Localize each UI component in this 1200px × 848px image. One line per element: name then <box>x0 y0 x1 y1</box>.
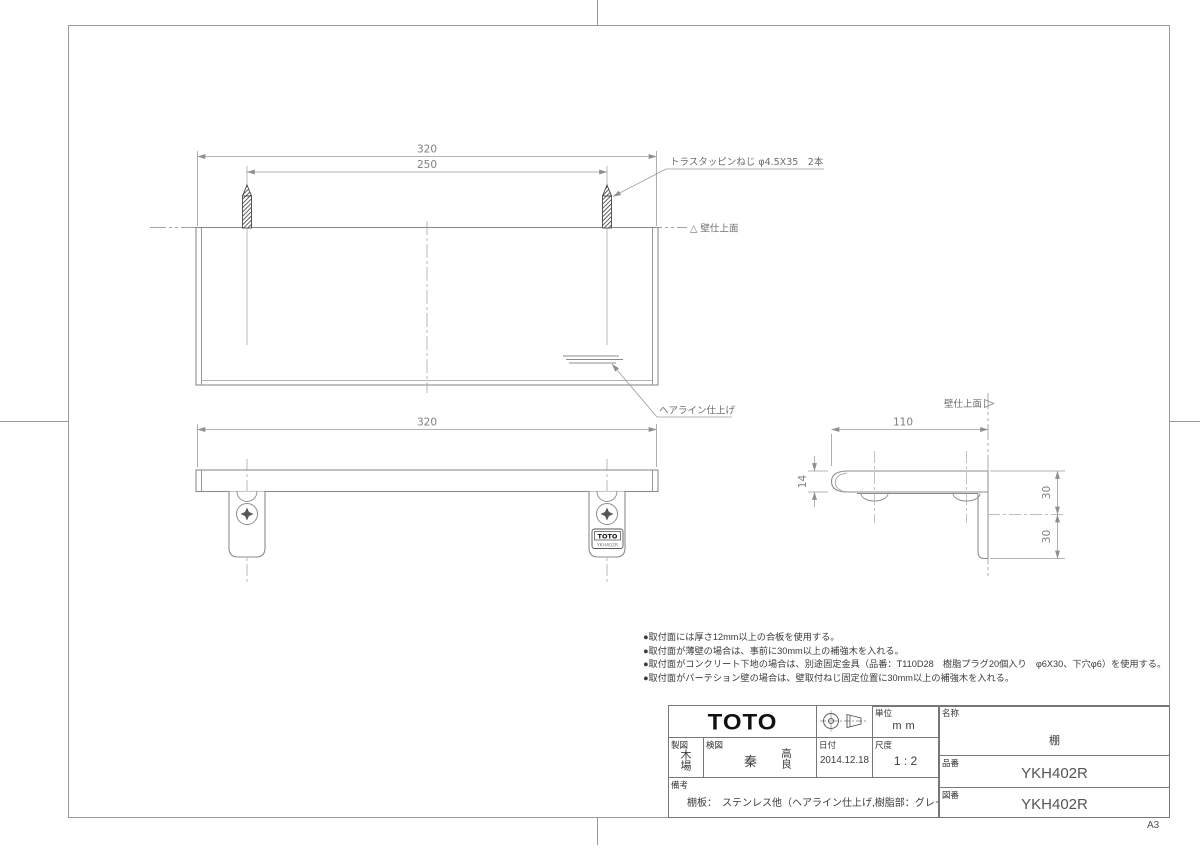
title-block: TOTO 単位 mm 製図 木場 検図 秦 高良 <box>668 705 1170 818</box>
dimension-lower-30: 30 <box>990 515 1065 559</box>
remarks-label: 備考 <box>671 779 688 791</box>
note-line: ●取付面がパーテション壁の場合は、壁取付ねじ固定位置に30mm以上の補強木を入れ… <box>643 672 1168 686</box>
unit-cell: 単位 mm <box>873 706 939 738</box>
screw-icon <box>603 166 612 345</box>
svg-text:トラスタッピンねじ φ4.5X35 2本: トラスタッピンねじ φ4.5X35 2本 <box>670 156 824 168</box>
checker-cell: 検図 秦 高良 <box>704 738 817 778</box>
drafter-cell: 製図 木場 <box>669 738 704 778</box>
shelf-plate-front <box>196 470 658 492</box>
note-line: ●取付面が薄壁の場合は、事前に30mm以上の補強木を入れる。 <box>643 645 1168 659</box>
scale-label: 尺度 <box>875 739 892 751</box>
part-number-value: YKH402R <box>940 765 1169 782</box>
drawing-number-cell: 図番 YKH402R <box>939 788 1169 817</box>
dimension-upper-30: 30 <box>988 471 1066 515</box>
shelf-plate-profile <box>832 471 989 492</box>
svg-text:14: 14 <box>797 475 809 489</box>
svg-text:320: 320 <box>417 417 437 429</box>
checker-label: 検図 <box>706 739 723 751</box>
top-view: 320 250 トラスタッピンねじ φ4.5X35 2本 △ 壁仕上面 <box>150 144 824 418</box>
date-cell: 日付 2014.12.18 <box>817 738 873 778</box>
svg-text:30: 30 <box>1041 486 1053 499</box>
svg-text:110: 110 <box>893 417 913 429</box>
third-angle-projection-icon <box>817 706 871 736</box>
installation-notes: ●取付面には厚さ12mm以上の合板を使用する。 ●取付面が薄壁の場合は、事前に3… <box>643 631 1168 689</box>
dimension-thickness: 14 <box>797 456 828 507</box>
date-label: 日付 <box>819 739 836 751</box>
name-label: 名称 <box>942 707 959 719</box>
hairline-finish-annotation: ヘアライン仕上げ <box>563 356 736 417</box>
name-cell: 名称 棚 <box>939 706 1169 756</box>
dimension-depth: 110 <box>832 417 989 467</box>
note-line: ●取付面には厚さ12mm以上の合板を使用する。 <box>643 631 1168 645</box>
screw-annotation: トラスタッピンねじ φ4.5X35 2本 <box>613 156 824 197</box>
part-number-cell: 品番 YKH402R <box>939 756 1169 788</box>
unit-value: mm <box>873 720 938 732</box>
tag-brand: TOTO <box>598 533 618 541</box>
date-value: 2014.12.18 <box>817 755 872 766</box>
bracket-left <box>229 459 265 584</box>
svg-text:250: 250 <box>417 159 437 171</box>
remarks-cell: 備考 棚板： ステンレス他（ヘアライン仕上げ,樹脂部：グレー） <box>669 778 939 817</box>
svg-text:30: 30 <box>1041 530 1053 543</box>
brand-logo-cell: TOTO <box>669 706 817 738</box>
dimension-front-width: 320 <box>198 417 657 468</box>
projection-symbol-cell <box>817 706 873 738</box>
drawing-sheet: 320 250 トラスタッピンねじ φ4.5X35 2本 △ 壁仕上面 <box>0 0 1200 848</box>
wall-finish-label-side: 壁仕上面 <box>944 398 994 410</box>
front-view: 320 <box>196 417 658 585</box>
dimension-screw-pitch: 250 <box>247 159 607 172</box>
svg-text:320: 320 <box>417 144 437 156</box>
bracket-right: TOTO YKH402R <box>589 459 625 584</box>
drafter-name: 木場 <box>679 749 691 771</box>
dimension-top-width: 320 <box>198 144 657 227</box>
product-tag: TOTO YKH402R <box>592 529 623 549</box>
remarks-value: 棚板： ステンレス他（ヘアライン仕上げ,樹脂部：グレー） <box>687 794 939 809</box>
checker-stamp: 秦 <box>744 751 757 770</box>
scale-value: 1 : 2 <box>873 754 938 768</box>
checker-stamp: 高良 <box>780 748 791 769</box>
side-view: 壁仕上面 110 <box>797 393 1066 577</box>
tag-model: YKH402R <box>596 543 619 549</box>
toto-logo: TOTO <box>669 710 816 736</box>
svg-text:△ 壁仕上面: △ 壁仕上面 <box>690 223 738 235</box>
bracket-profile <box>857 451 988 559</box>
svg-text:ヘアライン仕上げ: ヘアライン仕上げ <box>659 405 736 417</box>
drawing-number-value: YKH402R <box>940 796 1169 813</box>
svg-text:壁仕上面: 壁仕上面 <box>944 398 982 410</box>
wall-finish-label-top: △ 壁仕上面 <box>687 221 759 235</box>
wall-triangle-icon <box>985 400 994 408</box>
unit-label: 単位 <box>875 707 892 719</box>
screw-icon <box>243 166 252 345</box>
name-value: 棚 <box>940 732 1169 748</box>
note-line: ●取付面がコンクリート下地の場合は、別途固定金具（品番：T110D28 樹脂プラ… <box>643 658 1168 672</box>
paper-size-label: A3 <box>1147 820 1159 831</box>
scale-cell: 尺度 1 : 2 <box>873 738 939 778</box>
